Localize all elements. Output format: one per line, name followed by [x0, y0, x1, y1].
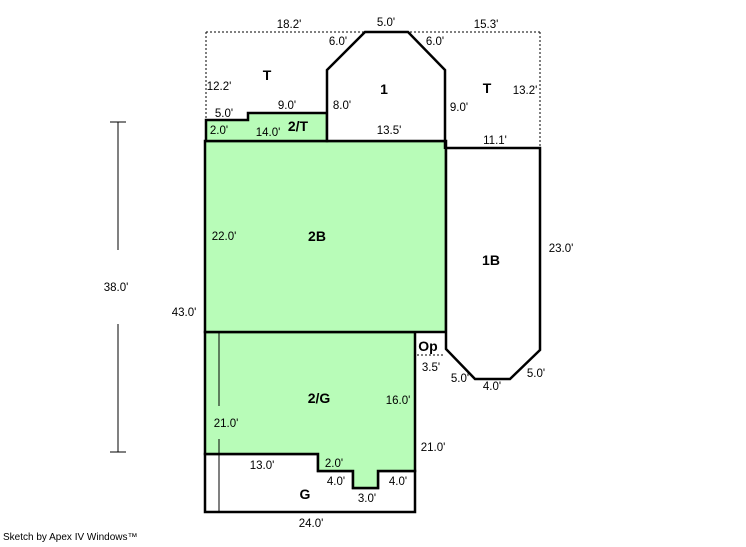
dim-g-notch-right: 4.0': [389, 476, 407, 488]
dim-right-21ft: 21.0': [421, 442, 446, 454]
dim-top-left: 18.2': [277, 19, 302, 31]
floorplan-sketch-svg: 18.2' 5.0' 15.3' 6.0' 6.0' 12.2' 13.2' 9…: [0, 0, 746, 547]
dim-1b-diag-left: 5.0': [451, 373, 469, 385]
dim-g-notch-left: 4.0': [327, 476, 345, 488]
dim-t-right-height: 13.2': [513, 85, 538, 97]
dim-2t-step-top: 5.0': [215, 108, 233, 120]
area-label-g: G: [300, 486, 311, 502]
dim-g-step: 2.0': [325, 458, 343, 470]
dim-overall-43ft: 43.0': [172, 307, 197, 319]
dim-g-top-left: 13.0': [250, 460, 275, 472]
area-label-2b: 2B: [308, 228, 326, 244]
dim-area1-left: 8.0': [333, 100, 351, 112]
credit-text: Sketch by Apex IV Windows™: [3, 532, 138, 543]
dim-top-right: 15.3': [474, 19, 499, 31]
dim-diag-left: 6.0': [329, 36, 347, 48]
dim-g-bottom: 24.0': [299, 518, 324, 530]
dim-g-notch-bottom: 3.0': [358, 493, 376, 505]
area-label-t-right: T: [483, 80, 492, 96]
dim-2g-right: 16.0': [386, 395, 411, 407]
dim-area1-right: 9.0': [450, 102, 468, 114]
area-label-1b: 1B: [482, 252, 500, 268]
dim-top-middle: 5.0': [377, 17, 395, 29]
dim-area1-bottom: 13.5': [377, 125, 402, 137]
dim-2g-left: 21.0': [214, 418, 239, 430]
dim-1b-diag-right: 5.0': [527, 368, 545, 380]
dim-1b-top: 11.1': [483, 135, 507, 147]
dim-t-left-height: 12.2': [207, 81, 232, 93]
dim-overall-38ft: 38.0': [104, 282, 129, 294]
dim-1b-bottom: 4.0': [483, 381, 501, 393]
area-label-2t: 2/T: [288, 118, 309, 134]
dim-2b-left: 22.0': [212, 231, 237, 243]
dim-2t-top: 9.0': [278, 100, 296, 112]
area-label-2g: 2/G: [308, 390, 331, 406]
area-label-1: 1: [380, 81, 388, 97]
dim-2t-left-height: 2.0': [210, 125, 228, 137]
floorplan-sketch-canvas: 18.2' 5.0' 15.3' 6.0' 6.0' 12.2' 13.2' 9…: [0, 0, 746, 547]
dim-op-width: 3.5': [422, 362, 440, 374]
area-label-op: Op: [418, 338, 437, 354]
dim-diag-right: 6.0': [426, 36, 444, 48]
dim-1b-right: 23.0': [549, 243, 574, 255]
dim-2t-bottom: 14.0': [256, 127, 281, 139]
area-label-t-left: T: [263, 67, 272, 83]
